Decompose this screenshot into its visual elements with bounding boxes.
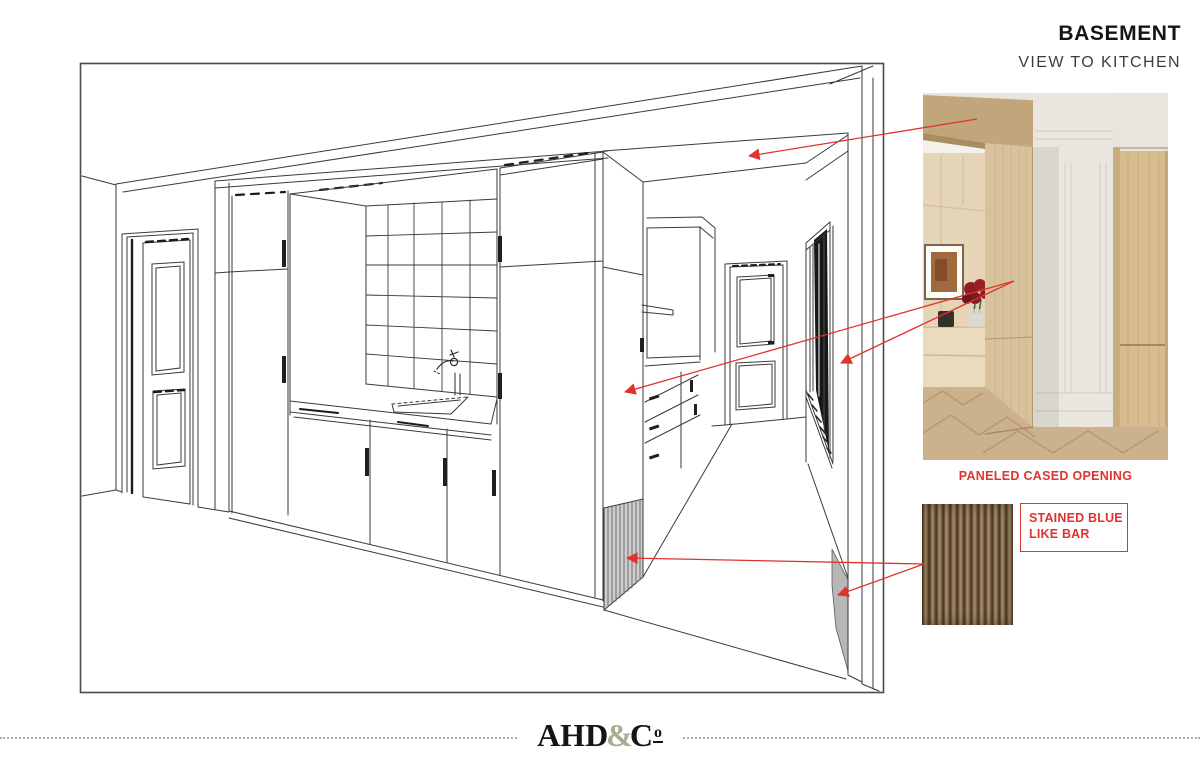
right-tall-cabinet bbox=[500, 152, 603, 601]
brand-logo-text: AHD&Co bbox=[519, 719, 681, 751]
drawing-frame bbox=[81, 64, 884, 693]
faucet bbox=[434, 350, 460, 395]
fluted-base bbox=[604, 499, 643, 610]
photo-pilaster bbox=[1033, 93, 1113, 433]
presentation-slide: BASEMENT VIEW TO KITCHEN bbox=[0, 0, 1200, 776]
photo-door bbox=[1113, 148, 1168, 441]
callout-line-1: STAINED BLUE bbox=[1029, 510, 1127, 526]
photo-artwork bbox=[925, 245, 963, 299]
photo-candle bbox=[938, 311, 954, 327]
callout-line-2: LIKE BAR bbox=[1029, 526, 1127, 542]
title-block: BASEMENT VIEW TO KITCHEN bbox=[1018, 22, 1181, 72]
paneled-opening-photo bbox=[923, 93, 1168, 460]
left-door bbox=[116, 229, 229, 512]
sink bbox=[392, 397, 468, 414]
page-subtitle: VIEW TO KITCHEN bbox=[1018, 54, 1181, 72]
page-title: BASEMENT bbox=[1018, 22, 1181, 45]
base-cabinets bbox=[229, 420, 603, 607]
window bbox=[806, 222, 848, 578]
floor-lines bbox=[604, 610, 846, 679]
logo-ahd: AHD bbox=[537, 717, 608, 753]
fluted-wood-swatch bbox=[922, 504, 1013, 625]
shadow-wedge bbox=[832, 549, 848, 671]
photo-caption: PANELED CASED OPENING bbox=[923, 469, 1168, 483]
front-cabinets bbox=[215, 151, 608, 515]
brand-logo: AHD&Co bbox=[0, 719, 1200, 751]
stained-blue-callout-box: STAINED BLUE LIKE BAR bbox=[1020, 503, 1128, 552]
photo-jamb-panel bbox=[985, 143, 1033, 434]
corridor-end-door bbox=[712, 261, 806, 426]
logo-superscript-o: o bbox=[653, 724, 663, 743]
beam-lines bbox=[82, 66, 873, 496]
logo-c: C bbox=[630, 717, 653, 753]
logo-ampersand: & bbox=[606, 717, 633, 753]
tile-niche bbox=[290, 169, 497, 424]
